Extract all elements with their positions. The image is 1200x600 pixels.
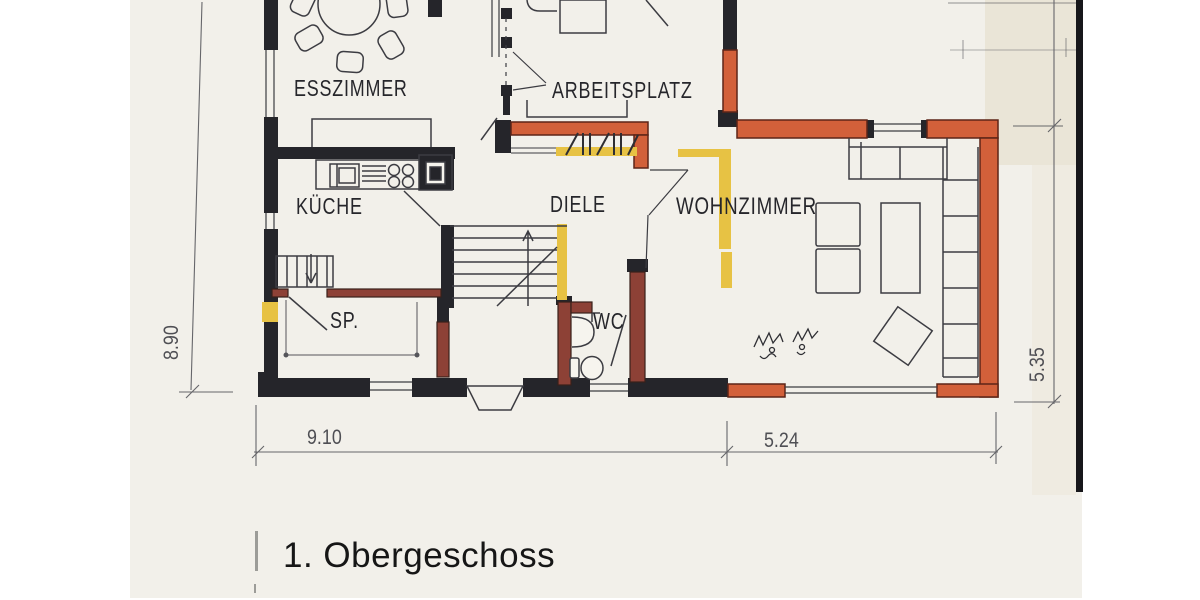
column-marker <box>501 8 512 19</box>
plant-scribble <box>754 329 818 359</box>
dim-right-height: 5.35 <box>1026 347 1050 382</box>
shelf-ladder <box>943 147 978 377</box>
stove-burner <box>389 165 400 176</box>
dim-bottom-main: 9.10 <box>307 426 342 450</box>
kitchen-door <box>404 191 440 226</box>
photo-edge-bar <box>1076 0 1083 492</box>
sp-wall <box>327 289 441 297</box>
wc-right-wall <box>630 272 645 382</box>
dim-left-height: 8.90 <box>160 325 184 360</box>
stairs <box>450 226 567 306</box>
dim-bottom-annex: 5.24 <box>764 429 799 453</box>
livingroom-furniture <box>754 138 978 377</box>
couch <box>881 203 920 293</box>
wc-sink <box>572 317 594 347</box>
living-sideboard <box>849 138 947 179</box>
floorplan-photo: ESSZIMMER ARBEITSPLATZ KÜCHE DIELE WOHNZ… <box>0 0 1200 600</box>
room-label-sp: SP. <box>330 307 359 334</box>
room-label-kueche: KÜCHE <box>296 193 363 220</box>
photo-artifact-mark <box>254 584 256 593</box>
room-label-diele: DIELE <box>550 191 606 218</box>
armchair <box>816 203 860 246</box>
toilet-bowl <box>581 357 603 380</box>
toilet-tank <box>570 358 579 378</box>
dining-sideboard <box>312 119 431 147</box>
column-marker <box>501 85 512 96</box>
porch-step <box>467 386 523 410</box>
leader-lines <box>513 52 546 90</box>
stove-burner <box>389 177 400 188</box>
sp-door <box>289 297 327 330</box>
livingroom-right-wall <box>980 138 998 397</box>
wc-left-wall <box>558 302 571 385</box>
stove-burner <box>403 177 414 188</box>
stairs-up-arrow <box>523 231 533 306</box>
kitchen-counter <box>316 155 452 190</box>
dining-table <box>318 0 380 35</box>
room-label-esszimmer: ESSZIMMER <box>294 75 408 102</box>
radiator-wall <box>511 122 648 135</box>
armchair <box>816 249 860 293</box>
stove-burner <box>403 165 414 176</box>
furniture-lines <box>276 0 978 410</box>
floor-title: 1. Obergeschoss <box>283 536 555 576</box>
pillar <box>495 120 511 153</box>
room-label-wc: WC <box>593 308 624 335</box>
room-label-wohnzimmer: WOHNZIMMER <box>676 193 817 221</box>
photo-artifact-mark <box>255 531 258 571</box>
left-dimension-line <box>179 2 233 398</box>
side-table <box>874 307 932 365</box>
room-label-arbeitsplatz: ARBEITSPLATZ <box>552 77 693 104</box>
small-stair <box>276 254 333 287</box>
